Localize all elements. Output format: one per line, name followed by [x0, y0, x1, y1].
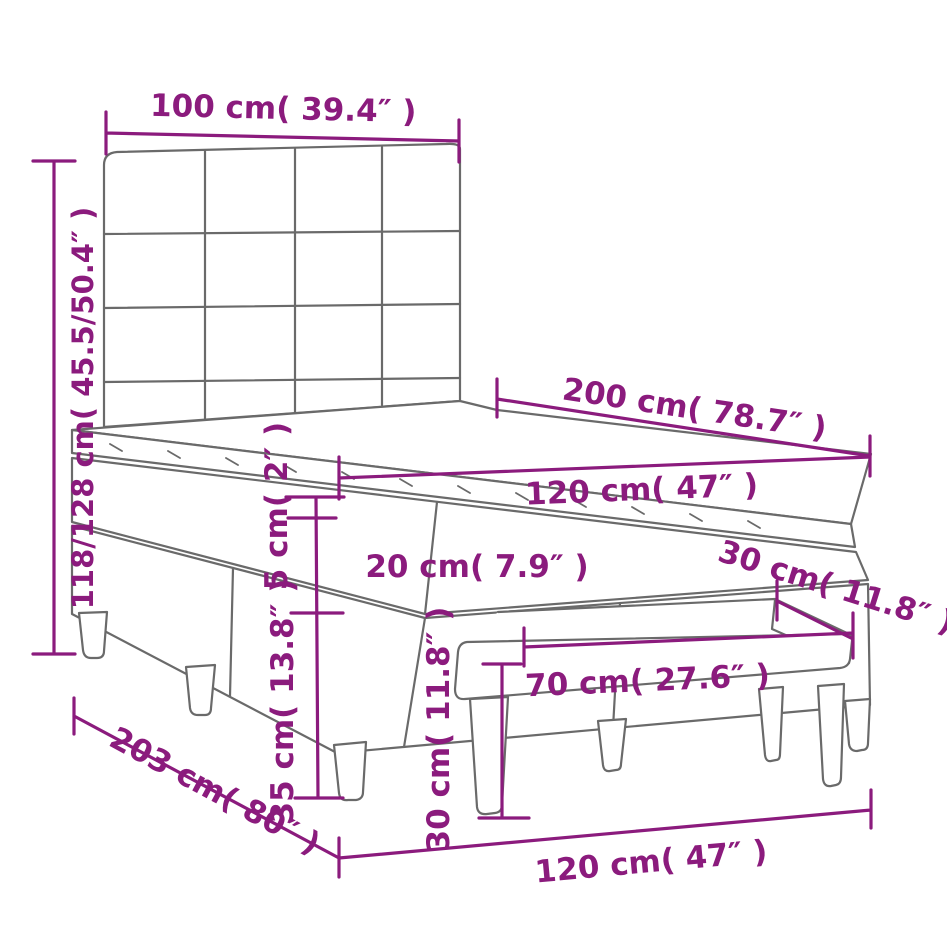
- label-topper-thickness: 5 cm( 2″ ): [259, 422, 295, 590]
- label-bench-height: 30 cm( 11.8″ ): [421, 607, 457, 852]
- headboard: [104, 144, 460, 427]
- product-dimension-diagram: 100 cm( 39.4″ ) 118/128 cm( 45.5/50.4″ )…: [0, 0, 947, 947]
- label-mattress-thickness: 20 cm( 7.9″ ): [365, 549, 588, 585]
- bench-leg-back-left: [598, 719, 626, 771]
- label-headboard-width: 100 cm( 39.4″ ): [150, 88, 417, 130]
- dimension-diagram-svg: 100 cm( 39.4″ ) 118/128 cm( 45.5/50.4″ )…: [0, 0, 947, 947]
- label-base-height: 35 cm( 13.8″ ): [265, 579, 301, 824]
- bench-leg-back-right: [759, 687, 783, 761]
- label-overall-height: 118/128 cm( 45.5/50.4″ ): [66, 207, 100, 610]
- bench-leg-front-right: [818, 684, 844, 786]
- label-frame-width: 120 cm( 47″ ): [533, 834, 768, 891]
